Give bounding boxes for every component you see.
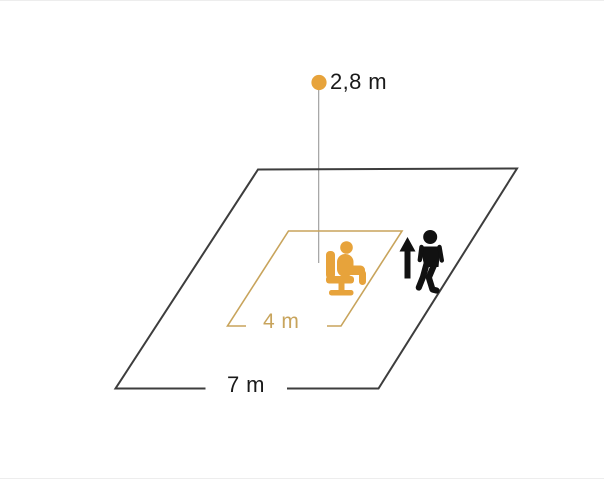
detection-range-diagram: 2,8 m 4 m 7 m (0, 0, 604, 479)
mounting-height-label: 2,8 m (330, 71, 387, 93)
walking-detection-area-outline (116, 169, 518, 389)
seated-detection-area-outline (228, 231, 403, 326)
seated-person-icon (326, 241, 366, 295)
seated-range-label: 4 m (263, 311, 299, 332)
diagram-canvas (0, 1, 604, 479)
walking-range-label: 7 m (227, 374, 265, 396)
sensor-dot-icon (311, 75, 326, 90)
walking-person-icon (419, 230, 442, 291)
up-arrow-icon (400, 237, 416, 279)
